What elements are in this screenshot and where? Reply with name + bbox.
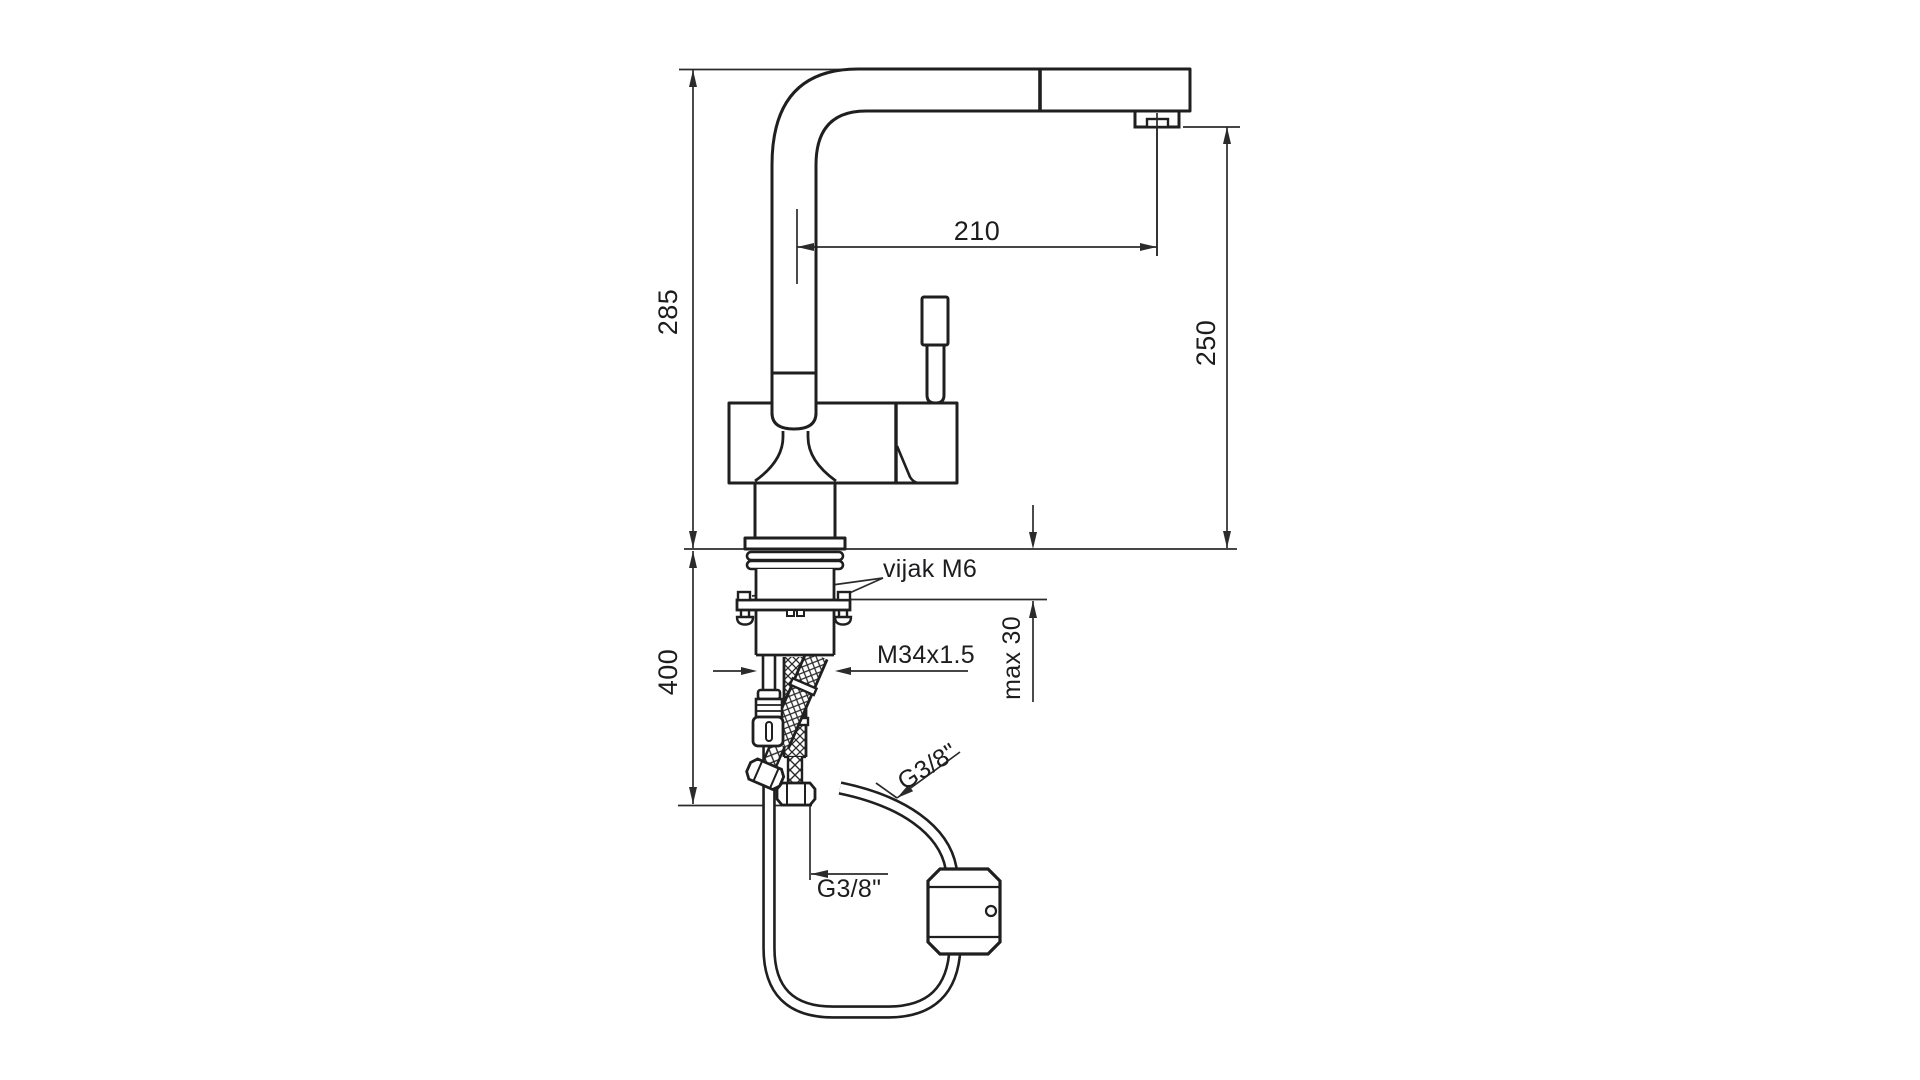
bracket-screw-left	[738, 592, 750, 600]
riser-u-bottom	[772, 413, 816, 429]
label-m34x15: M34x1.5	[877, 641, 975, 669]
spout-top	[858, 69, 1190, 111]
arrow-400-down	[689, 787, 697, 804]
base-washer-2	[747, 561, 843, 569]
handle-stem	[927, 345, 944, 403]
faucet-dimension-drawing: 285 210 250 400 max 30 vijak M6 M34x1.5 …	[0, 0, 1920, 1080]
arrow-285-down	[689, 531, 697, 548]
arrow-400-up	[689, 551, 697, 568]
weight-screw	[986, 906, 996, 916]
arrow-m34-right	[741, 667, 757, 675]
arrow-max30-down	[1029, 532, 1037, 549]
dim-label-210: 210	[954, 216, 1001, 246]
arrow-210-right	[1140, 243, 1157, 251]
label-g38-side: G3/8"	[893, 738, 963, 796]
faucet-body	[729, 403, 957, 483]
spout-outer-bend	[772, 69, 858, 165]
hex-nut-side	[744, 757, 786, 792]
arrow-285-up	[689, 70, 697, 87]
dim-label-285: 285	[653, 289, 683, 336]
base-flange	[745, 538, 845, 549]
bracket-nut-left	[737, 617, 753, 625]
handle-base-seam	[897, 446, 918, 483]
label-g38-bottom: G3/8"	[817, 875, 882, 903]
faucet-outline	[729, 69, 1190, 569]
arrow-250-up	[1223, 127, 1231, 144]
faucet-dimension-drawing-page: 285 210 250 400 max 30 vijak M6 M34x1.5 …	[0, 0, 1920, 1080]
spout-inner-bend	[816, 111, 866, 165]
dim-label-400: 400	[653, 649, 683, 696]
arrow-210-left	[797, 243, 814, 251]
base-washer-1	[747, 552, 843, 560]
dim-label-max30: max 30	[998, 616, 1026, 700]
bracket-tab-1	[787, 610, 794, 616]
pullout-hose-connector	[753, 655, 783, 746]
mounting-bracket	[737, 600, 850, 610]
mounting-shank	[737, 569, 851, 655]
hex-nut-bottom	[777, 783, 815, 805]
riser-tube	[772, 165, 816, 415]
base-neck	[755, 483, 835, 538]
arrow-max30-up	[1029, 601, 1037, 618]
arrow-250-down	[1223, 531, 1231, 548]
dim-label-250: 250	[1191, 320, 1221, 367]
hose-weight	[928, 869, 1000, 954]
bracket-nut-right	[835, 617, 851, 625]
handle-knob	[922, 297, 948, 345]
spout-aerator	[1135, 111, 1179, 256]
label-vijak-m6: vijak M6	[883, 555, 977, 583]
spray-head-curves	[755, 431, 836, 481]
bracket-screw-right	[838, 592, 850, 600]
arrow-m34-left	[835, 667, 851, 675]
dimension-labels: 285 210 250 400 max 30 vijak M6 M34x1.5 …	[653, 216, 1221, 903]
bracket-tab-2	[797, 610, 804, 616]
